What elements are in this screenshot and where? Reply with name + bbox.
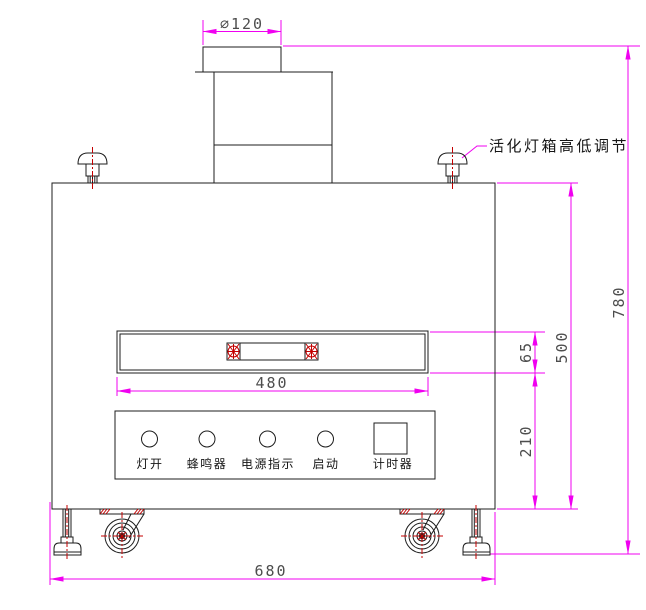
panel-label-buzzer: 蜂鸣器: [187, 456, 228, 471]
text-layer: ∅120 480 680 65 210 500 780 活化灯箱高低调节 灯开 …: [136, 15, 629, 580]
dim-text-slot-width: 480: [255, 374, 288, 392]
dim-text-duct-diameter: ∅120: [220, 15, 264, 33]
equipment-front-view-drawing: ∅120 480 680 65 210 500 780 活化灯箱高低调节 灯开 …: [0, 0, 646, 610]
lamp-on-button: [142, 431, 158, 447]
exhaust-duct: [195, 47, 333, 183]
callout-label: 活化灯箱高低调节: [489, 138, 629, 155]
panel-label-power-indicator: 电源指示: [241, 456, 295, 471]
duct-outlet: [203, 47, 281, 72]
plate-hatch-marks: [100, 509, 444, 514]
dim-text-panel-zone-height: 210: [517, 424, 535, 457]
start-button: [318, 431, 334, 447]
dimension-layer: [50, 20, 640, 585]
dim-text-slot-height: 65: [517, 341, 535, 363]
outline-layer: [52, 47, 495, 555]
lamp-holder-hatch-right: [306, 344, 318, 359]
panel-label-start: 启动: [312, 457, 339, 471]
uv-lamp-tube: [227, 343, 318, 360]
centerline-layer: [67, 147, 476, 561]
panel-label-lamp-on: 灯开: [136, 457, 163, 471]
dim-text-overall-width: 680: [254, 562, 287, 580]
lamp-box-housing: [214, 72, 332, 183]
timer-display: [374, 423, 407, 454]
dim-text-overall-height: 780: [610, 285, 628, 318]
observation-slot: [117, 331, 428, 373]
cad-drawing-svg: ∅120 480 680 65 210 500 780 活化灯箱高低调节 灯开 …: [0, 0, 646, 610]
dim-text-body-height: 500: [553, 330, 571, 363]
lamp-holder-hatch-left: [228, 344, 240, 359]
power-indicator-lamp: [260, 431, 276, 447]
panel-label-timer: 计时器: [373, 457, 414, 471]
callout-leader-line: [462, 146, 487, 158]
buzzer-button: [199, 431, 215, 447]
